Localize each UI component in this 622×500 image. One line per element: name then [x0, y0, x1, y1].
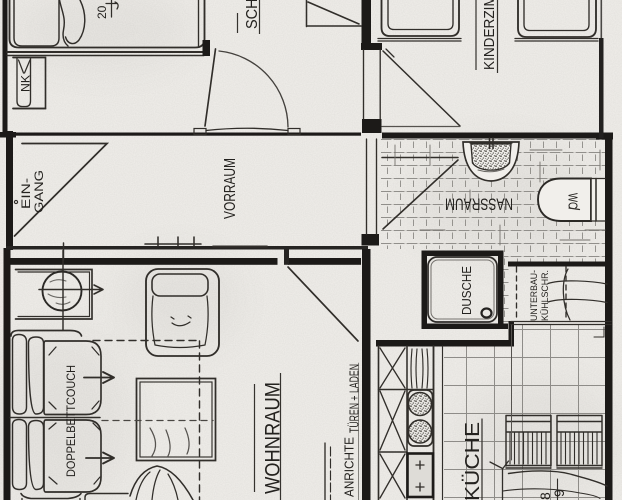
svg-text:20: 20 — [95, 5, 109, 19]
svg-text:NASSRAUM: NASSRAUM — [445, 195, 513, 214]
svg-text:9: 9 — [551, 489, 567, 497]
svg-text:VORRAUM: VORRAUM — [222, 158, 239, 219]
svg-text:GANG: GANG — [34, 170, 46, 213]
svg-text:NK: NK — [19, 75, 33, 92]
svg-text:EIN-: EIN- — [21, 178, 33, 209]
svg-text:KINDERZIMMER: KINDERZIMMER — [481, 0, 498, 70]
svg-text:TÜREN + LADEN: TÜREN + LADEN — [347, 364, 362, 433]
svg-text:UNTERBAU-: UNTERBAU- — [529, 270, 540, 321]
svg-text:DOPPELBETTCOUCH: DOPPELBETTCOUCH — [64, 365, 78, 477]
svg-text:SCHLAFZIMMER: SCHLAFZIMMER — [244, 0, 261, 29]
svg-text:KÜCHE: KÜCHE — [462, 422, 484, 500]
svg-text:WC: WC — [566, 193, 581, 209]
svg-text:KÜHLSCHR.: KÜHLSCHR. — [540, 270, 551, 321]
svg-text:ANRICHTE: ANRICHTE — [342, 437, 357, 497]
svg-text:DUSCHE: DUSCHE — [459, 266, 474, 315]
